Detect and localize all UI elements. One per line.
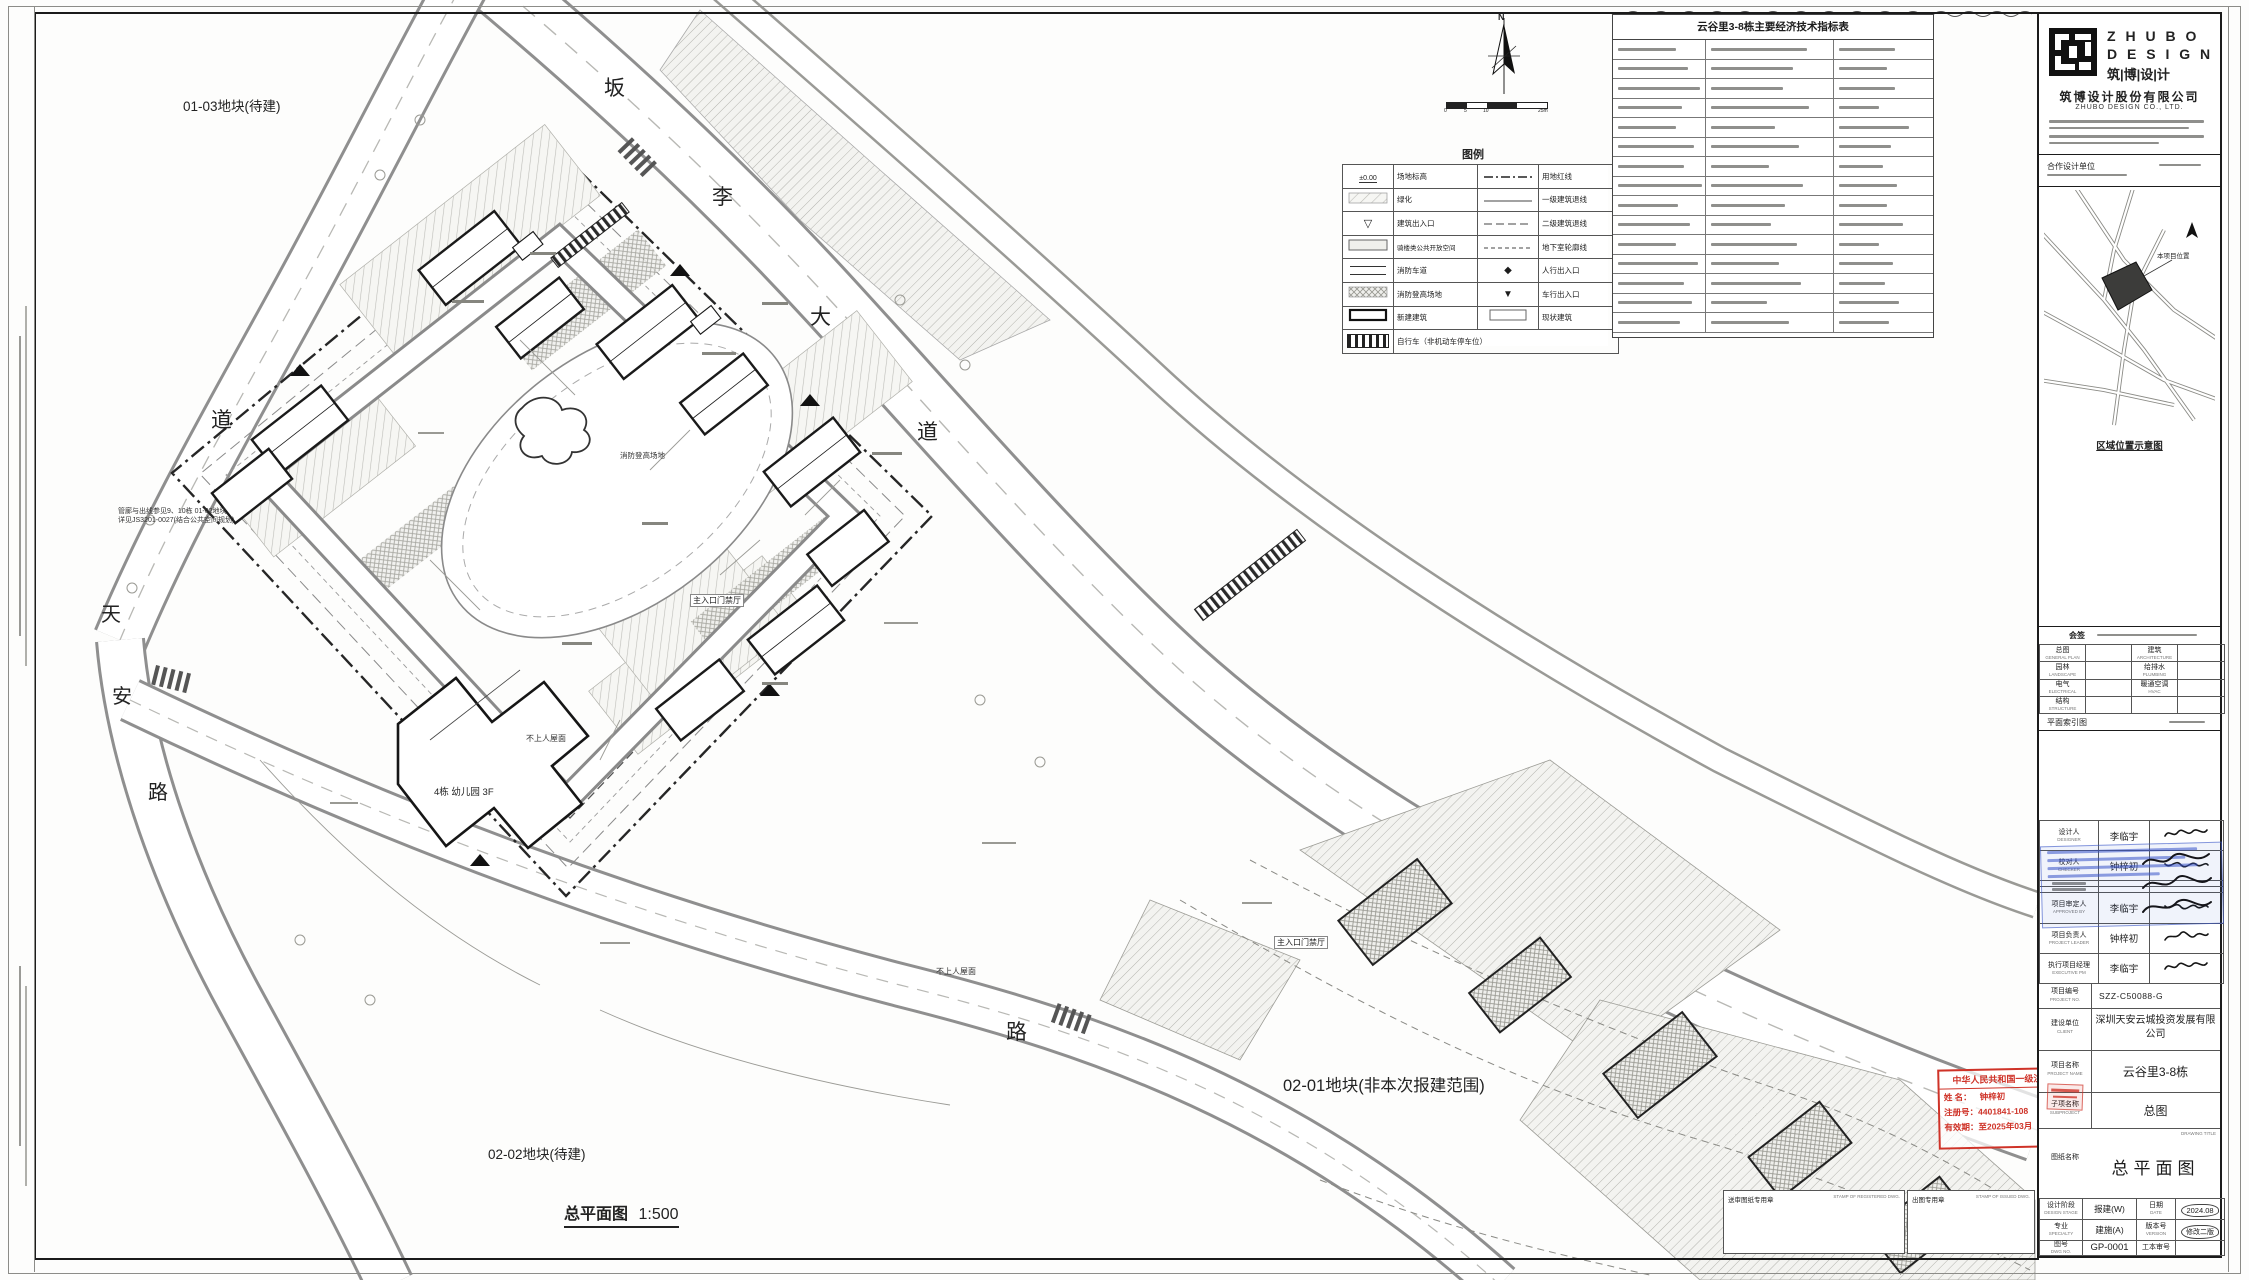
subproject-en: SUBPROJECT	[2039, 1110, 2091, 1115]
gate-label-2: 主入口门禁厅	[1274, 936, 1328, 949]
discipline: 总图	[2040, 647, 2085, 655]
stamp-name: 钟梓初	[1980, 1091, 2006, 1102]
project-number-row: 项目编号 PROJECT NO. SZZ-C50088-G	[2039, 984, 2220, 1009]
legend-label: 用地红线	[1539, 165, 1619, 189]
client-en: CLIENT	[2039, 1029, 2091, 1034]
stamp-valid: 至2025年03月	[1978, 1120, 2032, 1131]
parcel-0103-label: 01-03地块(待建)	[183, 95, 281, 115]
specialty-label: 专业	[2040, 1223, 2082, 1231]
map-marker-label: 本项目位置	[2157, 250, 2190, 260]
legend-label: 消防登高场地	[1394, 282, 1478, 306]
scale-title: 总平面图	[564, 1206, 628, 1223]
econ-row	[1613, 274, 1933, 294]
road-char: 道	[211, 404, 232, 434]
road-char: 坂	[604, 72, 625, 102]
dwg-no-label: 图号	[2040, 1241, 2082, 1249]
annotation-mark	[562, 642, 592, 645]
econ-row	[1613, 196, 1933, 216]
road-char: 路	[148, 776, 168, 805]
site-note-line2: 详见JS3201-0027(结合公共空间规划)	[118, 515, 234, 525]
discipline: 结构	[2040, 698, 2085, 706]
legend-symbol-basement	[1478, 235, 1539, 259]
logo-text-2: D E S I G N	[2107, 46, 2213, 62]
client-label: 建设单位	[2039, 1020, 2091, 1028]
road-char: 大	[810, 301, 831, 331]
scale-value: 1:500	[638, 1206, 678, 1223]
annotation-mark	[530, 252, 556, 255]
titleblock-bottom-grid: 设计阶段DESIGN STAGE 报建(W) 日期DATE 2024.08 专业…	[2039, 1198, 2225, 1256]
signature-row: 执行项目经理EXECUTIVE PM李临宇	[2040, 953, 2224, 983]
coop-designer-label: 合作设计单位	[2047, 161, 2095, 172]
discipline-grid: 总图GENERAL PLAN 建筑ARCHITECTURE 园林LANDSCAP…	[2039, 644, 2225, 714]
econ-row	[1613, 216, 1933, 236]
road-char: 李	[712, 181, 733, 211]
legend-symbol-bicycle	[1343, 330, 1394, 354]
discipline: 建筑	[2132, 647, 2177, 655]
scalebar-tick: 10	[1483, 108, 1489, 114]
legend-label: 现状建筑	[1539, 306, 1619, 330]
project-number-en: PROJECT NO.	[2039, 997, 2091, 1002]
stage-label: 设计阶段	[2040, 1202, 2082, 1210]
project-name-value: 云谷里3-8栋	[2093, 1063, 2218, 1080]
stamp-box-review-label: 送审图纸专用章	[1728, 1194, 1774, 1204]
title-block: Z H U B O D E S I G N 筑|博|设|计 筑博设计股份有限公司…	[2037, 12, 2222, 1258]
discipline-en: ARCHITECTURE	[2132, 655, 2177, 660]
roof-label-2: 不上人屋面	[526, 733, 566, 744]
annotation-mark	[872, 452, 902, 455]
legend-label: 建筑出入口	[1394, 212, 1478, 236]
stamp-valid-label: 有效期：	[1944, 1121, 1978, 1132]
company-name-en: ZHUBO DESIGN CO., LTD.	[2039, 104, 2220, 111]
legend-symbol-entrance: ▽	[1343, 212, 1394, 236]
project-number-value: SZZ-C50088-G	[2099, 991, 2163, 1001]
legend-symbol-firefield	[1343, 282, 1394, 306]
drawing-scale-label: 总平面图 1:500	[564, 1200, 679, 1228]
econ-row	[1613, 157, 1933, 177]
warning-line-1	[19, 336, 21, 636]
legend-symbol-redline	[1478, 165, 1539, 189]
drawing-title-en: DRAWING TITLE	[2146, 1131, 2216, 1136]
subproject-row: 子项名称 SUBPROJECT 总图	[2039, 1092, 2220, 1129]
drawing-title-label: 图纸名称	[2039, 1154, 2091, 1162]
ref-no-label: 工本审号	[2137, 1244, 2175, 1252]
zhubo-logo	[2049, 28, 2097, 76]
drawing-title-value: 总平面图	[2093, 1154, 2218, 1179]
econ-row	[1613, 177, 1933, 197]
econ-row	[1613, 118, 1933, 138]
legend-label: 自行车（非机动车停车位）	[1394, 330, 1619, 354]
stamp-reg-label: 注册号：	[1944, 1106, 1978, 1117]
legend-label: 消防车道	[1394, 259, 1478, 283]
stamp-box-review-en: STAMP OF REGISTERED DWG.	[1833, 1194, 1900, 1199]
kindergarten-label: 4栋 幼儿园 3F	[432, 784, 496, 798]
keyplan-label: 平面索引图	[2047, 717, 2087, 728]
scalebar-tick: 25m	[1538, 108, 1548, 114]
legend-symbol-setback2	[1478, 212, 1539, 236]
annotation-mark	[642, 522, 668, 525]
annotation-mark	[1242, 902, 1272, 904]
road-char: 道	[917, 416, 938, 446]
legend-box: ±0.00 场地标高 用地红线 绿化 一级建筑退线 ▽ 建筑出入口 二级建筑退线…	[1342, 164, 1608, 346]
scalebar-tick: 0	[1444, 108, 1447, 114]
date-label: 日期	[2137, 1202, 2175, 1210]
annotation-mark	[762, 682, 788, 685]
warning-strip: 警示及说明 WARNING AND NOTES:	[8, 6, 35, 1272]
legend-symbol-elevation: ±0.00	[1343, 165, 1394, 189]
date-value: 2024.08	[2181, 1204, 2218, 1217]
location-map	[2044, 190, 2215, 430]
legend-symbol-newbuilding	[1343, 306, 1394, 330]
annotation-mark	[762, 302, 788, 305]
logo-text-1: Z H U B O	[2107, 28, 2199, 44]
legend-symbol-firelane	[1343, 259, 1394, 283]
warning-line-4	[25, 986, 27, 1186]
discipline: 电气	[2040, 681, 2085, 689]
annotation-mark	[418, 432, 444, 434]
subproject-value: 总图	[2093, 1102, 2218, 1119]
version-en: VERSION	[2137, 1231, 2175, 1236]
legend-label: 二级建筑退线	[1539, 212, 1619, 236]
econ-row	[1613, 79, 1933, 99]
north-label: N	[1498, 12, 1505, 22]
qualification-seal	[2047, 1083, 2084, 1110]
legend-label: 绿化	[1394, 188, 1478, 212]
econ-row	[1613, 235, 1933, 255]
stamp-reg: 4401841-108	[1978, 1105, 2028, 1116]
project-name-label: 项目名称	[2039, 1062, 2091, 1070]
parcel-0202-label: 02-02地块(待建)	[488, 1143, 586, 1163]
legend-symbol-setback1	[1478, 188, 1539, 212]
date-en: DATE	[2137, 1210, 2175, 1215]
dwg-no-value: GP-0001	[2083, 1240, 2137, 1255]
scalebar-tick: 5	[1464, 108, 1467, 114]
company-name-cn: 筑博设计股份有限公司	[2039, 88, 2220, 105]
legend-label: 地下室轮廓线	[1539, 235, 1619, 259]
annotation-mark	[600, 942, 630, 944]
legend-label: 车行出入口	[1539, 282, 1619, 306]
discipline: 给排水	[2132, 664, 2177, 672]
logo-text-3: 筑|博|设|计	[2107, 64, 2170, 83]
stamp-box-review: 送审图纸专用章 STAMP OF REGISTERED DWG.	[1723, 1190, 1905, 1254]
parcel-0201-label: 02-01地块(非本次报建范围)	[1283, 1072, 1485, 1096]
warning-line-2	[25, 306, 27, 666]
econ-row	[1613, 99, 1933, 119]
ref-no-value	[2176, 1240, 2225, 1255]
discipline-en: STRUCTURE	[2040, 706, 2085, 711]
legend-label: 一级建筑退线	[1539, 188, 1619, 212]
project-name-en: PROJECT NAME	[2039, 1071, 2091, 1076]
dwg-no-en: DWG NO.	[2040, 1249, 2082, 1254]
economic-table-title: 云谷里3-8栋主要经济技术指标表	[1613, 15, 1933, 37]
annotation-mark	[702, 352, 736, 355]
stage-en: DESIGN STAGE	[2040, 1210, 2082, 1215]
stage-value: 报建(W)	[2083, 1199, 2137, 1220]
legend-symbol-vehicle: ▼	[1478, 282, 1539, 306]
econ-row	[1613, 294, 1933, 314]
drawing-sheet: 警示及说明 WARNING AND NOTES: 01-03地块(待建) 02-…	[0, 0, 2249, 1280]
econ-row	[1613, 60, 1933, 80]
stamp-name-label: 姓 名：	[1944, 1091, 1972, 1102]
annotation-mark	[884, 622, 918, 624]
legend-label: 骑楼类公共开放空间	[1394, 235, 1478, 259]
version-label: 版本号	[2137, 1223, 2175, 1231]
legend-symbol-pedestrian: ◆	[1478, 259, 1539, 283]
discipline: 暖通空调	[2132, 681, 2177, 689]
annotation-mark	[982, 842, 1016, 844]
legend-label: 新建建筑	[1394, 306, 1478, 330]
economic-table: 云谷里3-8栋主要经济技术指标表	[1612, 14, 1934, 338]
legend-symbol-openspace	[1343, 235, 1394, 259]
legend-symbol-existing	[1478, 306, 1539, 330]
discipline: 园林	[2040, 664, 2085, 672]
discipline-en: HVAC	[2132, 689, 2177, 694]
huiqian-label: 会签	[2069, 630, 2085, 641]
map-caption: 区域位置示意图	[2039, 438, 2220, 452]
scale-bar: 0 5 10 25m	[1446, 100, 1550, 114]
handwriting-overlay	[2139, 850, 2217, 920]
stamp-box-issue-label: 出图专用章	[1912, 1194, 1945, 1204]
version-value: 修改二版	[2181, 1225, 2219, 1239]
drawing-title-row: DRAWING TITLE 图纸名称 总平面图	[2039, 1128, 2220, 1199]
discipline-en: PLUMBING	[2132, 672, 2177, 677]
econ-row	[1613, 40, 1933, 60]
north-compass: N	[1468, 16, 1540, 108]
legend-label: 人行出入口	[1539, 259, 1619, 283]
annotation-mark	[330, 802, 358, 804]
econ-row	[1613, 138, 1933, 158]
legend-symbol-green	[1343, 188, 1394, 212]
specialty-value: 建施(A)	[2083, 1219, 2137, 1240]
client-value: 深圳天安云城投资发展有限公司	[2093, 1014, 2218, 1042]
road-char: 安	[112, 680, 132, 709]
stamp-box-issue-en: STAMP OF ISSUED DWG.	[1976, 1194, 2030, 1199]
fire-field-label: 消防登高场地	[620, 450, 665, 461]
road-char: 天	[101, 598, 121, 627]
stamp-box-issue: 出图专用章 STAMP OF ISSUED DWG.	[1907, 1190, 2035, 1254]
gate-label-1: 主入口门禁厅	[690, 594, 744, 607]
econ-row	[1613, 313, 1933, 333]
discipline-en: LANDSCAPE	[2040, 672, 2085, 677]
discipline-en: GENERAL PLAN	[2040, 655, 2085, 660]
specialty-en: SPECIALTY	[2040, 1231, 2082, 1236]
project-number-label: 项目编号	[2039, 988, 2091, 996]
roof-label-1: 不上人屋面	[936, 966, 976, 977]
client-row: 建设单位 CLIENT 深圳天安云城投资发展有限公司	[2039, 1008, 2220, 1051]
warning-line-3	[19, 966, 21, 1146]
legend-title: 图例	[1462, 146, 1484, 162]
annotation-mark	[452, 300, 484, 303]
legend-label: 场地标高	[1394, 165, 1478, 189]
econ-row	[1613, 255, 1933, 275]
right-margin-line	[2228, 6, 2229, 1272]
discipline-en: ELECTRICAL	[2040, 689, 2085, 694]
road-char: 路	[1006, 1016, 1027, 1046]
